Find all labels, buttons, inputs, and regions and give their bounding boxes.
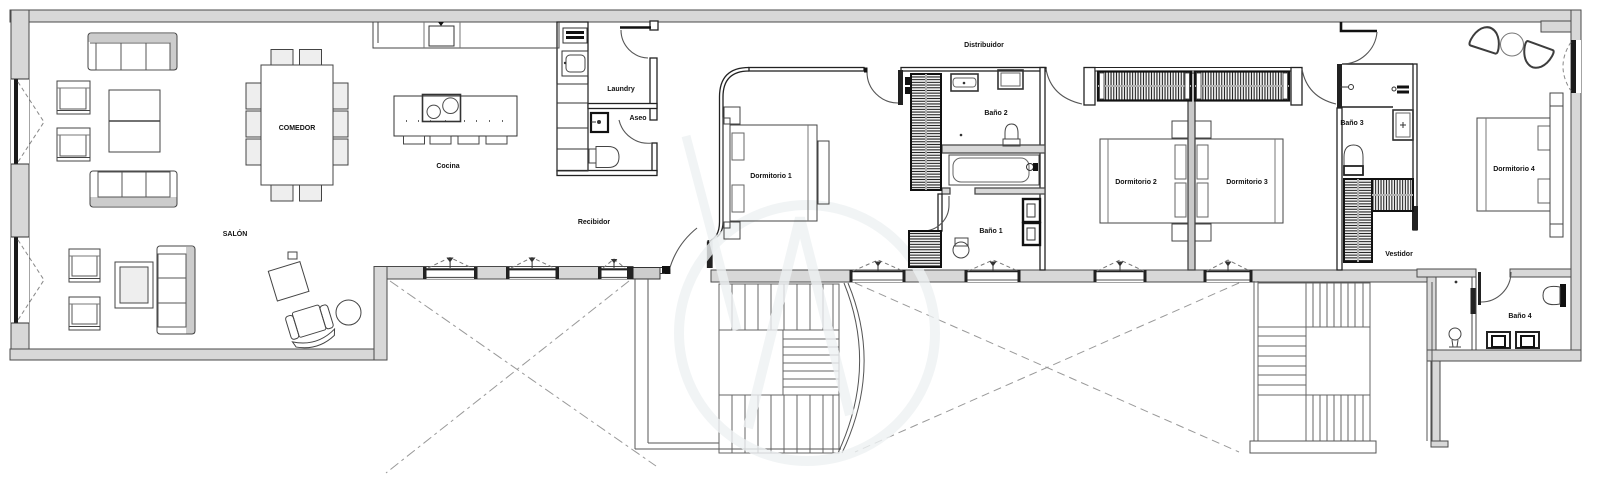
- svg-text:Laundry: Laundry: [607, 86, 635, 93]
- svg-text:Recibidor: Recibidor: [578, 219, 611, 226]
- svg-text:Baño 1: Baño 1: [979, 228, 1002, 235]
- svg-text:Aseo: Aseo: [629, 115, 646, 122]
- svg-text:Dormitorio 2: Dormitorio 2: [1115, 179, 1157, 186]
- svg-text:Baño 2: Baño 2: [984, 110, 1007, 117]
- svg-text:Cocina: Cocina: [436, 163, 459, 170]
- svg-text:SALÓN: SALÓN: [223, 229, 248, 238]
- svg-text:Baño 4: Baño 4: [1508, 313, 1531, 320]
- svg-text:Dormitorio 1: Dormitorio 1: [750, 173, 792, 180]
- svg-text:COMEDOR: COMEDOR: [279, 125, 316, 132]
- svg-text:Dormitorio 3: Dormitorio 3: [1226, 179, 1268, 186]
- svg-text:Dormitorio 4: Dormitorio 4: [1493, 166, 1535, 173]
- svg-text:Baño 3: Baño 3: [1340, 120, 1363, 127]
- svg-text:Vestidor: Vestidor: [1385, 251, 1413, 258]
- svg-text:Distribuidor: Distribuidor: [964, 42, 1004, 49]
